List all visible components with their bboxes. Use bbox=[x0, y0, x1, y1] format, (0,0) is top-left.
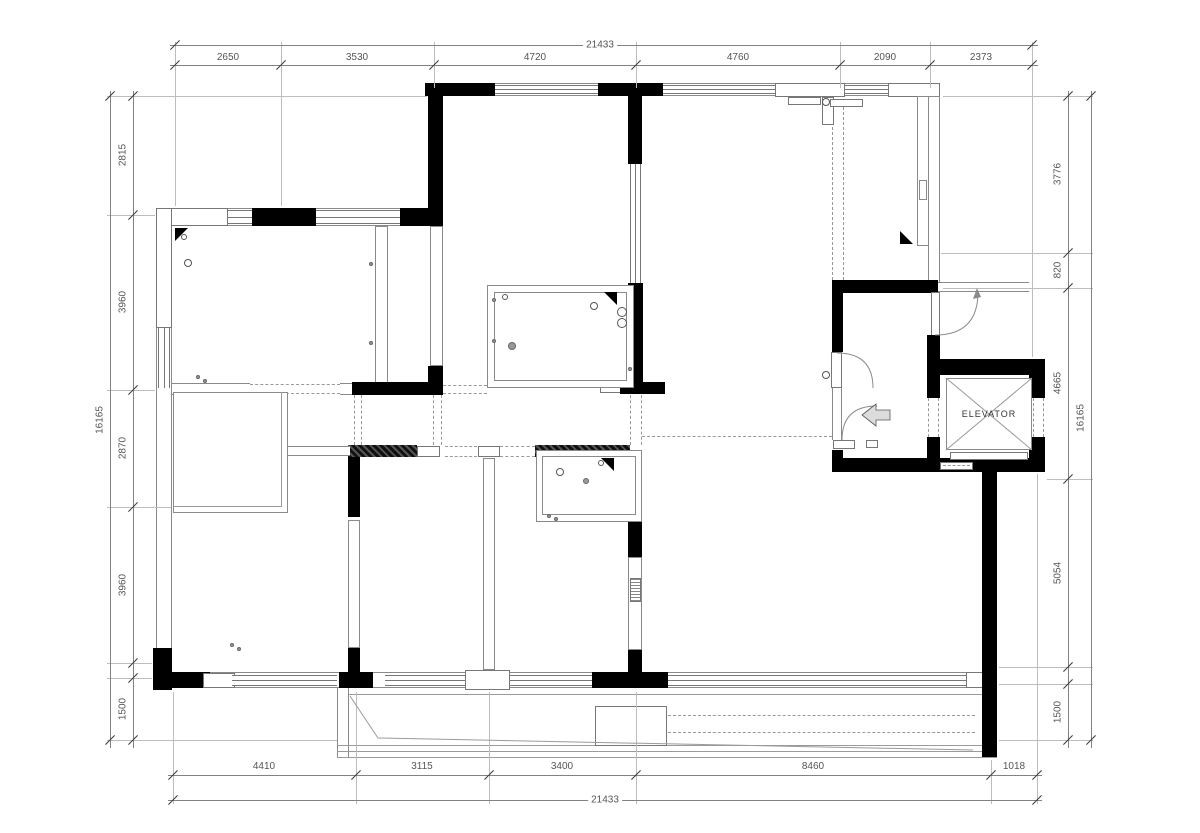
dim-top-seg-0: 2650 bbox=[217, 52, 239, 63]
dim-bottom-seg-0: 4410 bbox=[253, 761, 275, 772]
dim-left-total: 16165 bbox=[95, 403, 106, 437]
dim-left-seg-2: 2870 bbox=[118, 437, 129, 459]
dim-left-seg-1: 3960 bbox=[118, 291, 129, 313]
dim-bottom-seg-1: 3115 bbox=[411, 761, 433, 772]
dim-left-seg-0: 2815 bbox=[118, 144, 129, 166]
dim-bottom-seg-4: 1018 bbox=[1003, 761, 1025, 772]
dim-bottom-total: 21433 bbox=[588, 795, 622, 806]
dim-right-seg-1: 820 bbox=[1053, 262, 1064, 279]
dim-top-seg-3: 4760 bbox=[727, 52, 749, 63]
dim-left-seg-4: 1500 bbox=[118, 698, 129, 720]
lobby-door-arc-arrowhead bbox=[973, 288, 981, 299]
dim-left-seg-3: 3960 bbox=[118, 574, 129, 596]
dim-right-seg-4: 1500 bbox=[1053, 701, 1064, 723]
dim-right-seg-0: 3776 bbox=[1053, 163, 1064, 185]
entry-door-arc-upper bbox=[837, 353, 873, 388]
floor-plan: ELEVATOR 21433 2650 3530 4720 4760 2090 … bbox=[0, 0, 1200, 833]
dim-right-total: 16165 bbox=[1076, 401, 1087, 435]
dim-top-seg-1: 3530 bbox=[346, 52, 368, 63]
dim-bottom-seg-3: 8460 bbox=[802, 761, 824, 772]
dim-top-total: 21433 bbox=[583, 40, 617, 51]
dim-top-seg-5: 2373 bbox=[970, 52, 992, 63]
dim-top-seg-4: 2090 bbox=[874, 52, 896, 63]
elevator-shaft-label: ELEVATOR bbox=[946, 378, 1032, 450]
dim-right-seg-3: 5054 bbox=[1053, 562, 1064, 584]
dim-bottom-seg-2: 3400 bbox=[551, 761, 573, 772]
balcony-slope-line bbox=[350, 696, 973, 750]
dim-top-seg-2: 4720 bbox=[524, 52, 546, 63]
lobby-door-arc bbox=[935, 292, 978, 335]
dim-right-seg-2: 4665 bbox=[1053, 372, 1064, 394]
